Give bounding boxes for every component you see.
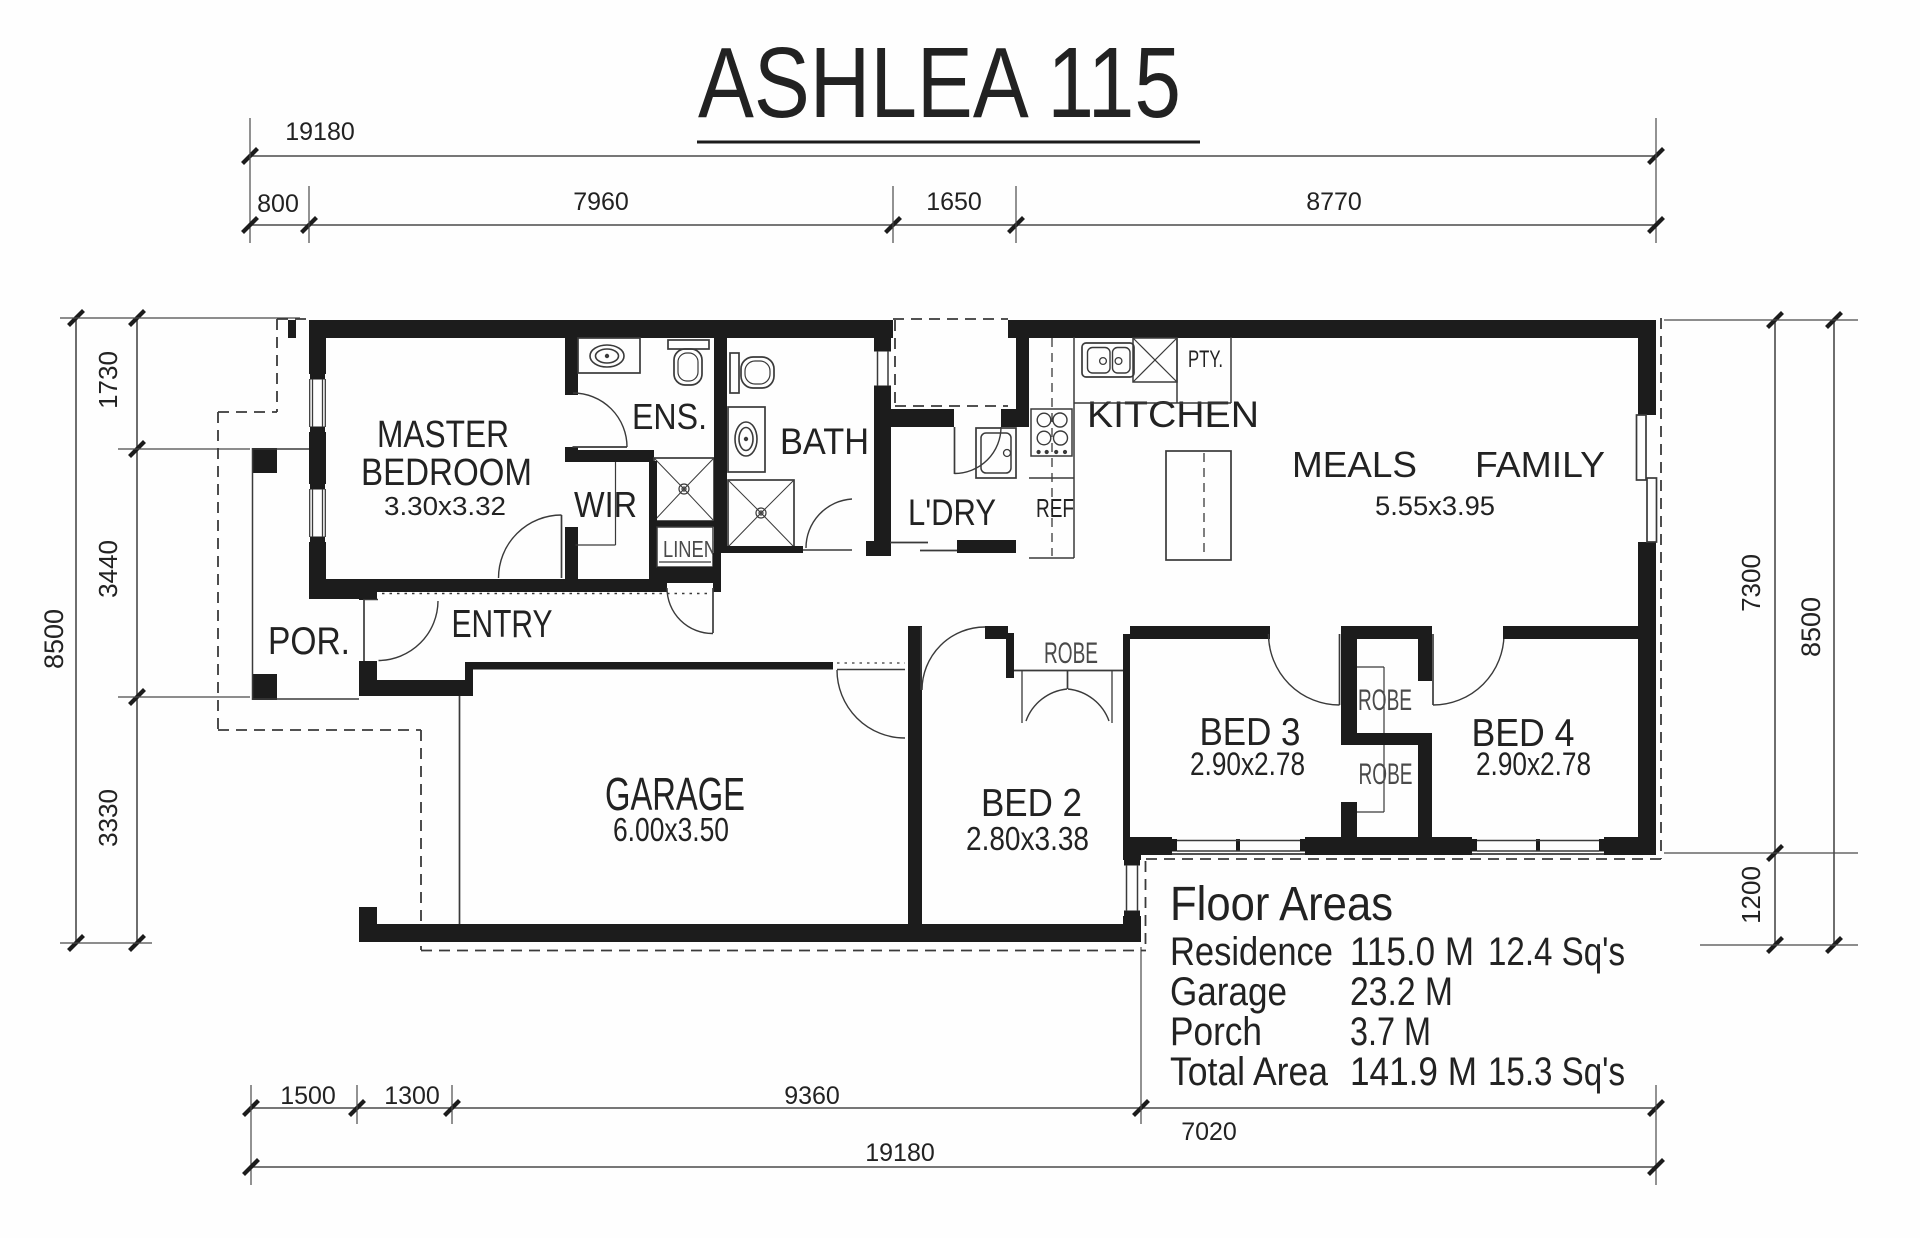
- svg-text:L'DRY: L'DRY: [908, 492, 996, 533]
- svg-text:3440: 3440: [93, 540, 123, 598]
- svg-text:2.90x2.78: 2.90x2.78: [1190, 746, 1305, 782]
- svg-text:2.90x2.78: 2.90x2.78: [1476, 746, 1591, 782]
- svg-text:9360: 9360: [784, 1082, 840, 1110]
- svg-text:5.55x3.95: 5.55x3.95: [1375, 491, 1495, 521]
- svg-text:19180: 19180: [865, 1139, 935, 1167]
- svg-text:8770: 8770: [1306, 188, 1362, 216]
- svg-text:3330: 3330: [93, 789, 123, 847]
- svg-text:19180: 19180: [285, 118, 355, 146]
- svg-text:ASHLEA 115: ASHLEA 115: [698, 27, 1181, 139]
- svg-text:3.30x3.32: 3.30x3.32: [384, 493, 506, 521]
- svg-text:115.0 M: 115.0 M: [1350, 930, 1474, 974]
- svg-text:23.2 M: 23.2 M: [1350, 970, 1453, 1014]
- svg-text:1500: 1500: [280, 1082, 336, 1110]
- svg-text:8500: 8500: [1796, 597, 1826, 657]
- svg-text:1730: 1730: [93, 351, 123, 409]
- svg-text:Porch: Porch: [1170, 1010, 1262, 1054]
- svg-text:PTY.: PTY.: [1188, 346, 1223, 373]
- svg-text:Garage: Garage: [1170, 970, 1287, 1014]
- svg-text:WIR: WIR: [574, 484, 637, 525]
- svg-text:1300: 1300: [384, 1082, 440, 1110]
- svg-text:8500: 8500: [39, 609, 69, 669]
- svg-text:ROBE: ROBE: [1358, 684, 1412, 717]
- svg-text:ROBE: ROBE: [1359, 758, 1413, 791]
- svg-text:15.3 Sq's: 15.3 Sq's: [1488, 1050, 1625, 1094]
- svg-text:BATH: BATH: [780, 421, 869, 462]
- svg-text:BEDROOM: BEDROOM: [361, 452, 532, 494]
- svg-text:FAMILY: FAMILY: [1475, 444, 1605, 485]
- svg-text:REF: REF: [1036, 493, 1074, 523]
- svg-text:Residence: Residence: [1170, 930, 1333, 974]
- svg-text:ROBE: ROBE: [1044, 637, 1098, 670]
- svg-text:1200: 1200: [1736, 866, 1766, 924]
- svg-text:12.4 Sq's: 12.4 Sq's: [1488, 930, 1625, 974]
- svg-text:141.9 M: 141.9 M: [1350, 1050, 1477, 1094]
- svg-text:7960: 7960: [573, 188, 629, 216]
- svg-text:800: 800: [257, 190, 299, 218]
- svg-text:LINEN: LINEN: [663, 536, 717, 562]
- svg-text:2.80x3.38: 2.80x3.38: [966, 820, 1089, 857]
- svg-text:1650: 1650: [926, 188, 982, 216]
- svg-text:ENTRY: ENTRY: [452, 603, 553, 646]
- svg-text:ENS.: ENS.: [632, 396, 707, 437]
- svg-text:7020: 7020: [1181, 1118, 1237, 1146]
- svg-text:Floor Areas: Floor Areas: [1170, 878, 1393, 931]
- svg-text:MEALS: MEALS: [1292, 444, 1417, 485]
- svg-text:MASTER: MASTER: [377, 414, 509, 456]
- svg-text:Total Area: Total Area: [1170, 1050, 1329, 1094]
- svg-text:6.00x3.50: 6.00x3.50: [613, 811, 729, 848]
- svg-text:POR.: POR.: [268, 620, 350, 663]
- svg-text:3.7 M: 3.7 M: [1350, 1010, 1431, 1054]
- svg-text:7300: 7300: [1736, 554, 1766, 612]
- svg-text:BED 2: BED 2: [981, 782, 1082, 825]
- svg-text:KITCHEN: KITCHEN: [1087, 394, 1259, 435]
